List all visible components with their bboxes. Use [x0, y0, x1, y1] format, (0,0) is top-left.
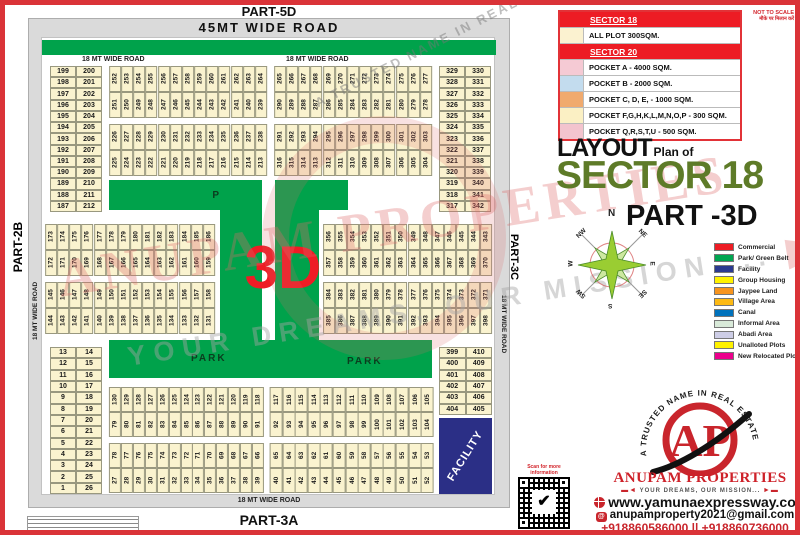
plot-280: 280 [396, 92, 408, 118]
plot-377: 377 [408, 282, 420, 308]
plot-row: 621 [50, 426, 102, 437]
plot-378: 378 [395, 282, 407, 308]
plot-row: 78777675747372717069686766 [109, 443, 264, 468]
plot-row: 317342 [439, 201, 491, 212]
plot-17: 17 [76, 381, 102, 392]
plot-row: 195204 [50, 111, 102, 122]
plot-174: 174 [57, 224, 69, 250]
plot-row: 126 [50, 483, 102, 494]
plot-114: 114 [308, 387, 321, 412]
plot-316: 316 [274, 150, 286, 176]
road-18mt-bottom-label: 18 MT WIDE ROAD [29, 497, 509, 504]
plot-221: 221 [158, 150, 170, 176]
plot-207: 207 [76, 145, 102, 156]
plot-row: 40414243444546474849505152 [270, 468, 434, 493]
plot-24: 24 [76, 460, 102, 471]
plot-21: 21 [76, 426, 102, 437]
plot-99: 99 [358, 412, 371, 437]
plot-277: 277 [420, 66, 432, 92]
plot-51: 51 [409, 468, 422, 493]
plot-350: 350 [395, 224, 407, 250]
plot-247: 247 [158, 92, 170, 118]
plot-122: 122 [204, 387, 216, 412]
plot-326: 326 [439, 100, 465, 111]
plot-274: 274 [383, 66, 395, 92]
legend-swatch [714, 276, 734, 284]
plot-block-187-212: 1992001982011972021962031952041942051932… [50, 66, 102, 212]
plot-10: 10 [50, 381, 76, 392]
plot-row: 322337 [439, 145, 491, 156]
plot-341: 341 [465, 190, 491, 201]
qr-finder-icon [518, 517, 530, 529]
plot-309: 309 [359, 150, 371, 176]
plot-row: 191208 [50, 156, 102, 167]
plot-107: 107 [396, 387, 409, 412]
plot-6: 6 [50, 426, 76, 437]
plot-63: 63 [295, 443, 308, 468]
plot-388: 388 [359, 308, 371, 334]
plot-2: 2 [50, 471, 76, 482]
plot-255: 255 [145, 66, 157, 92]
plot-284: 284 [347, 92, 359, 118]
plot-211: 211 [76, 190, 102, 201]
pocket-swatch [560, 76, 584, 91]
plot-72: 72 [181, 443, 193, 468]
pocket-label: ALL PLOT 300SQM. [584, 28, 740, 43]
plot-337: 337 [465, 145, 491, 156]
plot-271: 271 [347, 66, 359, 92]
plot-347: 347 [432, 224, 444, 250]
plot-92: 92 [270, 412, 283, 437]
plot-261: 261 [218, 66, 230, 92]
plot-215: 215 [231, 150, 243, 176]
plot-50: 50 [396, 468, 409, 493]
plot-row: 193206 [50, 133, 102, 144]
plot-row: 321338 [439, 156, 491, 167]
plot-row: 323336 [439, 133, 491, 144]
plot-110: 110 [358, 387, 371, 412]
plot-109: 109 [371, 387, 384, 412]
plot-25: 25 [76, 471, 102, 482]
plot-312: 312 [323, 150, 335, 176]
plot-238: 238 [255, 124, 267, 150]
plot-34: 34 [192, 468, 204, 493]
plot-64: 64 [283, 443, 296, 468]
plot-241: 241 [231, 92, 243, 118]
plot-136: 136 [142, 308, 154, 334]
plot-368: 368 [456, 250, 468, 276]
plot-row: 192207 [50, 145, 102, 156]
legend-item: Village Area [714, 296, 800, 307]
ap-logo-letters: AP [669, 415, 730, 466]
plot-245: 245 [182, 92, 194, 118]
plot-345: 345 [456, 224, 468, 250]
plot-79: 79 [109, 412, 121, 437]
plot-row: 290289288287286285284283282281280279278 [274, 92, 432, 118]
plot-360: 360 [359, 250, 371, 276]
legend-item: New Relocated Plots [714, 351, 800, 362]
plot-84: 84 [169, 412, 181, 437]
plot-396: 396 [456, 308, 468, 334]
plot-134: 134 [166, 308, 178, 334]
plot-54: 54 [409, 443, 422, 468]
plot-block-1-26: 1314121511161017918819720621522423324225… [50, 347, 102, 494]
plot-173: 173 [45, 224, 57, 250]
legend-label: Canal [738, 309, 756, 316]
road-18mt-top-label-1: 18 MT WIDE ROAD [82, 56, 145, 63]
plot-39: 39 [252, 468, 264, 493]
plot-168: 168 [94, 250, 106, 276]
pocket-row: POCKET B - 2000 SQM. [560, 76, 740, 92]
facility-block: FACILITY [439, 418, 492, 494]
plot-231: 231 [170, 124, 182, 150]
title-sector: SECTOR 18 [556, 154, 763, 198]
plot-276: 276 [408, 66, 420, 92]
plot-22: 22 [76, 438, 102, 449]
plot-239: 239 [255, 92, 267, 118]
plot-212: 212 [76, 201, 102, 212]
plot-362: 362 [383, 250, 395, 276]
legend-item: Unalloted Plots [714, 340, 800, 351]
plot-325: 325 [439, 111, 465, 122]
plot-301: 301 [396, 124, 408, 150]
plot-314: 314 [298, 150, 310, 176]
plot-275: 275 [396, 66, 408, 92]
plot-313: 313 [310, 150, 322, 176]
plot-367: 367 [444, 250, 456, 276]
plot-330: 330 [465, 66, 491, 77]
plot-342: 342 [465, 201, 491, 212]
plot-401: 401 [439, 370, 466, 381]
plot-159: 159 [203, 250, 215, 276]
plot-217: 217 [206, 150, 218, 176]
plot-242: 242 [218, 92, 230, 118]
plot-111: 111 [346, 387, 359, 412]
plot-row: 318341 [439, 190, 491, 201]
plot-191: 191 [50, 156, 76, 167]
plot-137: 137 [130, 308, 142, 334]
plot-116: 116 [283, 387, 296, 412]
compass-e: E [649, 261, 656, 265]
plot-132: 132 [191, 308, 203, 334]
plot-row: 320339 [439, 167, 491, 178]
plot-286: 286 [323, 92, 335, 118]
plot-171: 171 [57, 250, 69, 276]
plot-315: 315 [286, 150, 298, 176]
plot-344: 344 [468, 224, 480, 250]
pocket-swatch [560, 108, 584, 123]
qr-block: Scan for more information ✔ [516, 464, 572, 529]
legend-item: Park/ Green Belt [714, 253, 800, 264]
plot-108: 108 [383, 387, 396, 412]
plot-323: 323 [439, 133, 465, 144]
sector-header-label: SECTOR 20 [560, 44, 740, 59]
tagline-right-arrow-icon: ►▬ [763, 487, 779, 494]
plot-141: 141 [81, 308, 93, 334]
plot-404: 404 [439, 404, 466, 415]
plot-389: 389 [371, 308, 383, 334]
plot-399: 399 [439, 347, 466, 358]
plot-322: 322 [439, 145, 465, 156]
plot-158: 158 [203, 282, 215, 308]
plot-row: 324 [50, 460, 102, 471]
plot-32: 32 [169, 468, 181, 493]
plot-188: 188 [50, 190, 76, 201]
plot-264: 264 [255, 66, 267, 92]
plot-row: 1314 [50, 347, 102, 358]
plot-175: 175 [69, 224, 81, 250]
plot-131: 131 [203, 308, 215, 334]
plot-135: 135 [154, 308, 166, 334]
plot-96: 96 [320, 412, 333, 437]
plot-row: 402407 [439, 381, 492, 392]
plot-93: 93 [283, 412, 296, 437]
phone-numbers[interactable]: +918860586000 || +918860736000 [586, 521, 800, 535]
plot-row: 189210 [50, 178, 102, 189]
plot-59: 59 [346, 443, 359, 468]
compass-rose: N NE E SE S SW W NW [566, 208, 658, 312]
legend-swatch [714, 254, 734, 262]
plot-row: 117116115114113112111110109108107106105 [270, 387, 434, 412]
plot-370: 370 [480, 250, 492, 276]
plot-375: 375 [432, 282, 444, 308]
plot-380: 380 [371, 282, 383, 308]
plot-352: 352 [371, 224, 383, 250]
plot-row: 327332 [439, 88, 491, 99]
sector-header-row: SECTOR 20 [560, 44, 740, 60]
plot-55: 55 [396, 443, 409, 468]
plot-82: 82 [145, 412, 157, 437]
compass-s: S [608, 302, 612, 309]
plot-254: 254 [133, 66, 145, 92]
plot-235: 235 [218, 124, 230, 150]
plot-343: 343 [480, 224, 492, 250]
brand-tagline: ▬◄ YOUR DREAMS, OUR MISSION... ►▬ [596, 487, 800, 494]
plot-row: 79808182838485868788899091 [109, 412, 264, 437]
park-label: PARK [347, 356, 383, 367]
legend: CommercialPark/ Green BeltFacilityGroup … [714, 242, 800, 362]
plot-223: 223 [133, 150, 145, 176]
plot-294: 294 [310, 124, 322, 150]
plot-101: 101 [383, 412, 396, 437]
plot-12: 12 [50, 358, 76, 369]
plot-16: 16 [76, 370, 102, 381]
plot-186: 186 [203, 224, 215, 250]
plot-15: 15 [76, 358, 102, 369]
plot-331: 331 [465, 77, 491, 88]
plot-block-40-117-right: 1171161151141131121111101091081071061059… [270, 387, 434, 493]
plot-296: 296 [335, 124, 347, 150]
plot-298: 298 [359, 124, 371, 150]
plot-311: 311 [335, 150, 347, 176]
plot-70: 70 [204, 443, 216, 468]
legend-swatch [714, 320, 734, 328]
plot-201: 201 [76, 77, 102, 88]
plot-row: 325334 [439, 111, 491, 122]
plot-row: 291292293294295296297298299300301302303 [274, 124, 432, 150]
plot-295: 295 [323, 124, 335, 150]
plot-61: 61 [320, 443, 333, 468]
qr-finder-icon [518, 477, 530, 489]
legend-item: Informal Area [714, 318, 800, 329]
plot-143: 143 [57, 308, 69, 334]
plot-row: 423 [50, 449, 102, 460]
website-link[interactable]: www.yamunaexpressway.co [586, 494, 800, 510]
plot-66: 66 [252, 443, 264, 468]
plot-83: 83 [157, 412, 169, 437]
plot-154: 154 [154, 282, 166, 308]
plot-18: 18 [76, 392, 102, 403]
legend-item: Facility [714, 264, 800, 275]
plot-216: 216 [218, 150, 230, 176]
plot-77: 77 [121, 443, 133, 468]
plot-row: 225 [50, 471, 102, 482]
brand-name: ANUPAM PROPERTIES [596, 470, 800, 487]
plot-268: 268 [310, 66, 322, 92]
plot-266: 266 [286, 66, 298, 92]
plot-row: 199200 [50, 66, 102, 77]
plot-209: 209 [76, 167, 102, 178]
pocket-row: POCKET C, D, E, - 1000 SQM. [560, 92, 740, 108]
plot-293: 293 [298, 124, 310, 150]
legend-label: Commercial [738, 244, 775, 251]
plot-120: 120 [228, 387, 240, 412]
road-45mt-label: 45MT WIDE ROAD [29, 20, 509, 35]
plot-321: 321 [439, 156, 465, 167]
plot-297: 297 [347, 124, 359, 150]
plot-37: 37 [228, 468, 240, 493]
plot-179: 179 [118, 224, 130, 250]
plot-161: 161 [179, 250, 191, 276]
plot-127: 127 [145, 387, 157, 412]
plot-385: 385 [323, 308, 335, 334]
legend-label: Abadi Area [738, 331, 772, 338]
plot-387: 387 [347, 308, 359, 334]
plot-103: 103 [409, 412, 422, 437]
plot-row: 3853863873883893903913923933943953963973… [323, 308, 492, 334]
plot-23: 23 [76, 449, 102, 460]
plot-353: 353 [359, 224, 371, 250]
plot-329: 329 [439, 66, 465, 77]
plot-row: 819 [50, 404, 102, 415]
plot-374: 374 [444, 282, 456, 308]
plot-133: 133 [179, 308, 191, 334]
plot-197: 197 [50, 88, 76, 99]
legend-label: Group Housing [738, 277, 785, 284]
plot-393: 393 [420, 308, 432, 334]
plot-267: 267 [298, 66, 310, 92]
plot-198: 198 [50, 77, 76, 88]
plot-52: 52 [421, 468, 434, 493]
plot-272: 272 [359, 66, 371, 92]
plot-row: 265266267268269270271272273274275276277 [274, 66, 432, 92]
plot-251: 251 [109, 92, 121, 118]
plot-163: 163 [154, 250, 166, 276]
plot-318: 318 [439, 190, 465, 201]
plot-row: 130129128127126125124123122121120119118 [109, 387, 264, 412]
qr-code[interactable]: ✔ [518, 477, 570, 529]
plot-190: 190 [50, 167, 76, 178]
plot-57: 57 [371, 443, 384, 468]
plot-250: 250 [121, 92, 133, 118]
plot-29: 29 [133, 468, 145, 493]
plot-8: 8 [50, 404, 76, 415]
plot-394: 394 [432, 308, 444, 334]
plot-53: 53 [421, 443, 434, 468]
plot-11: 11 [50, 370, 76, 381]
email-text: anupamproperty2021@gmail.com [610, 509, 794, 521]
plot-149: 149 [94, 282, 106, 308]
legend-label: New Relocated Plots [738, 353, 800, 360]
plot-170: 170 [69, 250, 81, 276]
plot-106: 106 [409, 387, 422, 412]
plot-88: 88 [216, 412, 228, 437]
plot-302: 302 [408, 124, 420, 150]
plot-74: 74 [157, 443, 169, 468]
map-area: PART-5D PART-2B PART-3C PART-3A 45MT WID… [0, 0, 538, 535]
plot-62: 62 [308, 443, 321, 468]
plot-260: 260 [206, 66, 218, 92]
plot-60: 60 [333, 443, 346, 468]
plot-402: 402 [439, 381, 466, 392]
pocket-label: POCKET B - 2000 SQM. [584, 76, 740, 91]
plot-269: 269 [323, 66, 335, 92]
compass-n: N [608, 208, 615, 219]
plot-31: 31 [157, 468, 169, 493]
pocket-row: POCKET F,G,H,K,L,M,N,O,P - 300 SQM. [560, 108, 740, 124]
plot-row: 251250249248247246245244243242241240239 [109, 92, 267, 118]
plot-205: 205 [76, 122, 102, 133]
legend-label: Jaypee Land [738, 288, 777, 295]
plot-139: 139 [106, 308, 118, 334]
plot-row: 329330 [439, 66, 491, 77]
legend-label: Informal Area [738, 320, 780, 327]
plot-303: 303 [420, 124, 432, 150]
info-panel: NOT TO SCALE मौके पर मिलान करें SECTOR 1… [510, 0, 800, 535]
plot-365: 365 [420, 250, 432, 276]
plot-row: 197202 [50, 88, 102, 99]
legend-item: Jaypee Land [714, 286, 800, 297]
plot-block-213-264: 2522532542552562572582592602612622632642… [109, 66, 267, 176]
plot-block-399-410: 399410400409401408402407403406404405 [439, 347, 492, 415]
plot-361: 361 [371, 250, 383, 276]
plot-94: 94 [295, 412, 308, 437]
green-belt-top [42, 40, 496, 55]
plot-112: 112 [333, 387, 346, 412]
plot-409: 409 [466, 358, 493, 369]
plot-263: 263 [243, 66, 255, 92]
plot-225: 225 [109, 150, 121, 176]
plot-81: 81 [133, 412, 145, 437]
plot-244: 244 [194, 92, 206, 118]
plot-165: 165 [130, 250, 142, 276]
plot-291: 291 [274, 124, 286, 150]
plot-row: 1017 [50, 381, 102, 392]
plot-227: 227 [121, 124, 133, 150]
plot-157: 157 [191, 282, 203, 308]
plot-166: 166 [118, 250, 130, 276]
plot-300: 300 [383, 124, 395, 150]
plot-364: 364 [408, 250, 420, 276]
plot-177: 177 [94, 224, 106, 250]
plot-283: 283 [359, 92, 371, 118]
plot-181: 181 [142, 224, 154, 250]
plot-row: 401408 [439, 370, 492, 381]
plot-363: 363 [395, 250, 407, 276]
plot-47: 47 [358, 468, 371, 493]
plot-214: 214 [243, 150, 255, 176]
plot-35: 35 [204, 468, 216, 493]
